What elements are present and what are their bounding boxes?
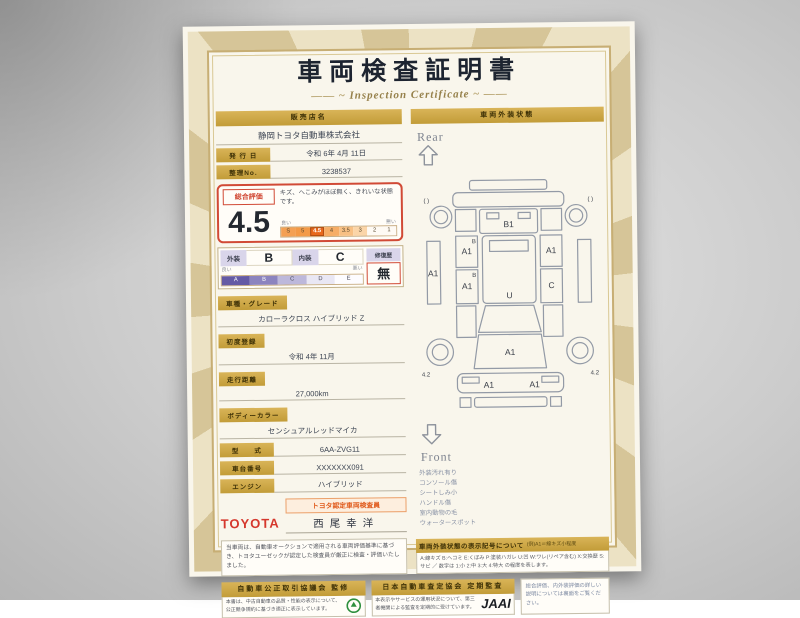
field-mileage-value: 27,000km (219, 385, 405, 401)
field-chassis-number-label: 車台番号 (220, 461, 274, 476)
exterior-condition-header: 車両外装状態 (411, 106, 604, 123)
scale-cell-4: 4 (324, 227, 338, 236)
issue-date-value: 令和 6年 4月 11日 (270, 146, 402, 162)
score-scale: 良い 悪い S 5 4.5 4 3.5 3 2 1 (280, 218, 397, 237)
serial-row: 整理No. 3238537 (216, 163, 402, 179)
mark-hood: A1 (505, 346, 516, 356)
legend-example: (例)A1＝線キズ小程度 (527, 540, 577, 548)
scale-bad-label: 悪い (386, 218, 396, 225)
front-down-arrow-icon (421, 422, 443, 444)
mark-left-door-sub1: B (472, 239, 476, 245)
mark-right-door-front: C (548, 280, 554, 290)
field-chassis-number: 車台番号 XXXXXXX091 (220, 459, 406, 475)
grade-cell-c: C (278, 275, 306, 284)
certificate-content: 車両検査証明書 Inspection Certificate 販売店名 静岡トヨ… (215, 56, 609, 547)
serial-value: 3238537 (270, 165, 402, 179)
overall-evaluation-box: 総合評価 キズ、へこみがほぼ無く、きれいな状態です。 4.5 良い 悪い S 5 (217, 182, 404, 244)
mark-left-door-sub2: B (472, 272, 476, 278)
field-engine: エンジン ハイブリッド (220, 477, 406, 493)
scale-cell-5: 5 (295, 227, 309, 236)
scale-cell-1: 1 (382, 226, 396, 235)
grades-box: 外装 B 内装 C 良い 悪い A B (217, 245, 403, 289)
mark-right-door-rear: A1 (546, 245, 557, 255)
mark-left-door-rear: A1 (461, 246, 472, 256)
certificate-paper: 車両検査証明書 Inspection Certificate 販売店名 静岡トヨ… (183, 21, 642, 576)
grade-scale: A B C D E (221, 273, 364, 286)
photo-background: 車両検査証明書 Inspection Certificate 販売店名 静岡トヨ… (0, 0, 800, 600)
field-chassis-number-value: XXXXXXX091 (274, 461, 406, 475)
front-label: Front (421, 447, 608, 464)
scale-cell-s: S (281, 227, 295, 236)
issue-date-label: 発 行 日 (216, 147, 270, 162)
repair-history-value: 無 (367, 262, 401, 284)
legend-title: 車両外装状態の表示記号について (419, 539, 524, 550)
mark-tire-front-right: 4.2 (591, 370, 600, 376)
legend-text: A:線キズ B:ヘコミ E:くぼみ P:塗装ハガレ U:凹 W:ワレ(リペア含む… (416, 550, 609, 573)
back-page-note: 総合評価、内外装評価の詳しい説明については裏面をご覧ください。 (521, 577, 610, 614)
rear-direction: Rear (417, 127, 604, 171)
field-model-grade-value: カローラクロス ハイブリッド Z (218, 309, 404, 327)
interior-label: 内装 (292, 249, 318, 265)
symbol-legend: 車両外装状態の表示記号について (例)A1＝線キズ小程度 A:線キズ B:ヘコミ… (416, 536, 609, 573)
mark-rear-corner-right: ( ) (587, 196, 593, 202)
jaai-logo: JAAI (481, 596, 511, 611)
right-column: 車両外装状態 Rear (411, 106, 610, 573)
overall-score: 4.5 (223, 209, 275, 238)
field-engine-label: エンジン (220, 479, 274, 494)
toyota-logo: TOYOTA (221, 516, 280, 535)
mark-tire-front-left: 4.2 (422, 372, 431, 378)
overall-evaluation-label: 総合評価 (223, 188, 275, 205)
fair-trade-block: 自動車公正取引協議会 監修 本書は、中古自動車の品質・性能の表示について、公正競… (221, 580, 365, 618)
field-mileage: 走行距離 27,000km (219, 367, 405, 401)
repair-history-label: 修復歴 (366, 248, 400, 261)
left-column: 販売店名 静岡トヨタ自動車株式会社 発 行 日 令和 6年 4月 11日 整理N… (216, 109, 408, 576)
field-model-grade: 車種・グレード カローラクロス ハイブリッド Z (218, 291, 404, 327)
field-model-code-value: 6AA-ZVG11 (274, 443, 406, 457)
mark-front-bumper-right: A1 (529, 379, 540, 389)
inspector-badge: トヨタ認定車両検査員 (285, 497, 406, 513)
rear-up-arrow-icon (417, 144, 439, 166)
condition-notes: 外装汚れ有り コンソール傷 シートしみ小 ハンドル傷 室内動物の毛 ウォータース… (415, 466, 609, 529)
issue-date-row: 発 行 日 令和 6年 4月 11日 (216, 146, 402, 162)
mark-left-sill: A1 (428, 268, 439, 278)
grade-cell-a: A (222, 276, 250, 285)
mark-front-bumper-left: A1 (484, 379, 495, 389)
field-model-code: 型 式 6AA-ZVG11 (220, 441, 406, 457)
interior-grade: C (318, 248, 364, 265)
scale-cell-3: 3 (353, 226, 367, 235)
field-body-color-value: センシュアルレッドマイカ (220, 421, 406, 439)
inspection-disclaimer: 当車両は、自動車オークションで適用される車両評価基準に基づき、トヨタユーゼックが… (221, 538, 407, 576)
scale-good-label: 良い (281, 219, 291, 226)
mark-left-door-front: A1 (462, 281, 473, 291)
field-mileage-label: 走行距離 (219, 372, 265, 387)
car-exterior-diagram: B1 U A1 A1 A1 A1 A1 A1 A1 C B (411, 171, 607, 421)
grade-cell-e: E (335, 274, 363, 283)
front-direction: Front (421, 420, 608, 464)
certificate-title: 車両検査証明書 (215, 56, 603, 88)
exterior-grade: B (246, 249, 292, 266)
field-model-code-label: 型 式 (220, 443, 274, 458)
evaluation-comment: キズ、へこみがほぼ無く、きれいな状態です。 (280, 187, 397, 207)
fair-trade-title: 自動車公正取引協議会 監修 (221, 580, 365, 597)
jaai-block: 日本自動車査定協会 定期監査 本表示やサービスの運用状況について、第三者機関によ… (371, 578, 515, 616)
field-first-registration-label: 初度登録 (218, 334, 264, 349)
grade-cell-b: B (250, 276, 278, 285)
field-body-color-label: ボディーカラー (219, 407, 287, 422)
fair-trade-text: 本書は、中古自動車の品質・性能の表示について、公正競争規約に基づき適正に表示して… (226, 598, 343, 614)
field-engine-value: ハイブリッド (274, 477, 406, 493)
scale-cell-3-5: 3.5 (339, 227, 353, 236)
exterior-label: 外装 (220, 250, 246, 266)
scale-cell-4-5-selected: 4.5 (310, 227, 324, 236)
grade-good-label: 良い (222, 266, 232, 273)
jaai-text: 本表示やサービスの運用状況について、第三者機関による監査を定期的に受けています。 (375, 596, 478, 612)
dealer-name: 静岡トヨタ自動車株式会社 (216, 124, 402, 145)
serial-label: 整理No. (216, 164, 270, 179)
footer-strip: 自動車公正取引協議会 監修 本書は、中古自動車の品質・性能の表示について、公正競… (221, 577, 609, 618)
mark-rear-corner-left: ( ) (423, 198, 429, 204)
field-model-grade-label: 車種・グレード (218, 295, 287, 310)
scale-cell-2: 2 (367, 226, 381, 235)
mark-roof: U (506, 290, 512, 300)
mark-rear-gate: B1 (503, 219, 514, 229)
note-item: ウォータースポット (420, 517, 609, 529)
field-first-registration-value: 令和 4年 11月 (219, 347, 405, 365)
field-first-registration: 初度登録 令和 4年 11月 (218, 329, 404, 365)
jaai-title: 日本自動車査定協会 定期監査 (371, 578, 515, 595)
grade-bad-label: 悪い (353, 264, 363, 271)
field-body-color: ボディーカラー センシュアルレッドマイカ (219, 403, 405, 439)
certificate-subtitle: Inspection Certificate (215, 86, 603, 103)
inspector-block: TOYOTA トヨタ認定車両検査員 西尾幸洋 (220, 497, 406, 534)
inspector-name: 西尾幸洋 (286, 512, 407, 533)
grade-cell-d: D (306, 275, 334, 284)
rear-label: Rear (417, 127, 604, 144)
